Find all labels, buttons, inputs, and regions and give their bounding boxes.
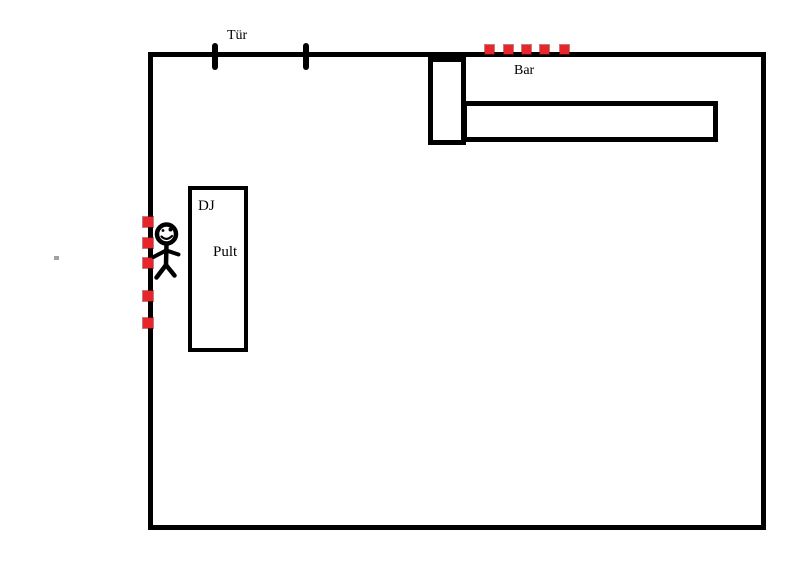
stick-figure-arm-left <box>154 251 166 257</box>
stick-figure-eye-left <box>162 229 165 232</box>
door-tick-right <box>303 43 309 70</box>
stick-figure-leg-right <box>166 265 175 276</box>
stick-figure-head <box>157 225 176 244</box>
red-dash-top-wall <box>504 45 513 54</box>
stray-pen-mark <box>54 256 59 260</box>
red-dash-left-wall <box>143 291 153 301</box>
red-dash-top-wall <box>560 45 569 54</box>
bar-counter-horizontal <box>462 101 718 142</box>
floorplan-canvas: Tür Bar DJ Pult <box>0 0 800 562</box>
red-dash-top-wall <box>485 45 494 54</box>
red-dash-left-wall <box>143 318 153 328</box>
stick-figure-arm-right <box>168 251 179 255</box>
dj-desk-label: DJ Pult <box>198 195 237 287</box>
stick-figure-eye-right <box>169 228 173 232</box>
red-dash-top-wall <box>540 45 549 54</box>
dj-label-line1: DJ <box>198 198 215 214</box>
door-tick-left <box>212 43 218 70</box>
red-dash-top-wall <box>522 45 531 54</box>
door-label: Tür <box>227 28 247 44</box>
bar-label: Bar <box>514 63 534 79</box>
stick-figure-body <box>166 244 167 265</box>
dj-label-line2: Pult <box>213 244 237 260</box>
stick-figure-leg-left <box>157 265 167 278</box>
stick-figure <box>145 218 190 290</box>
bar-counter-vertical <box>428 57 466 145</box>
